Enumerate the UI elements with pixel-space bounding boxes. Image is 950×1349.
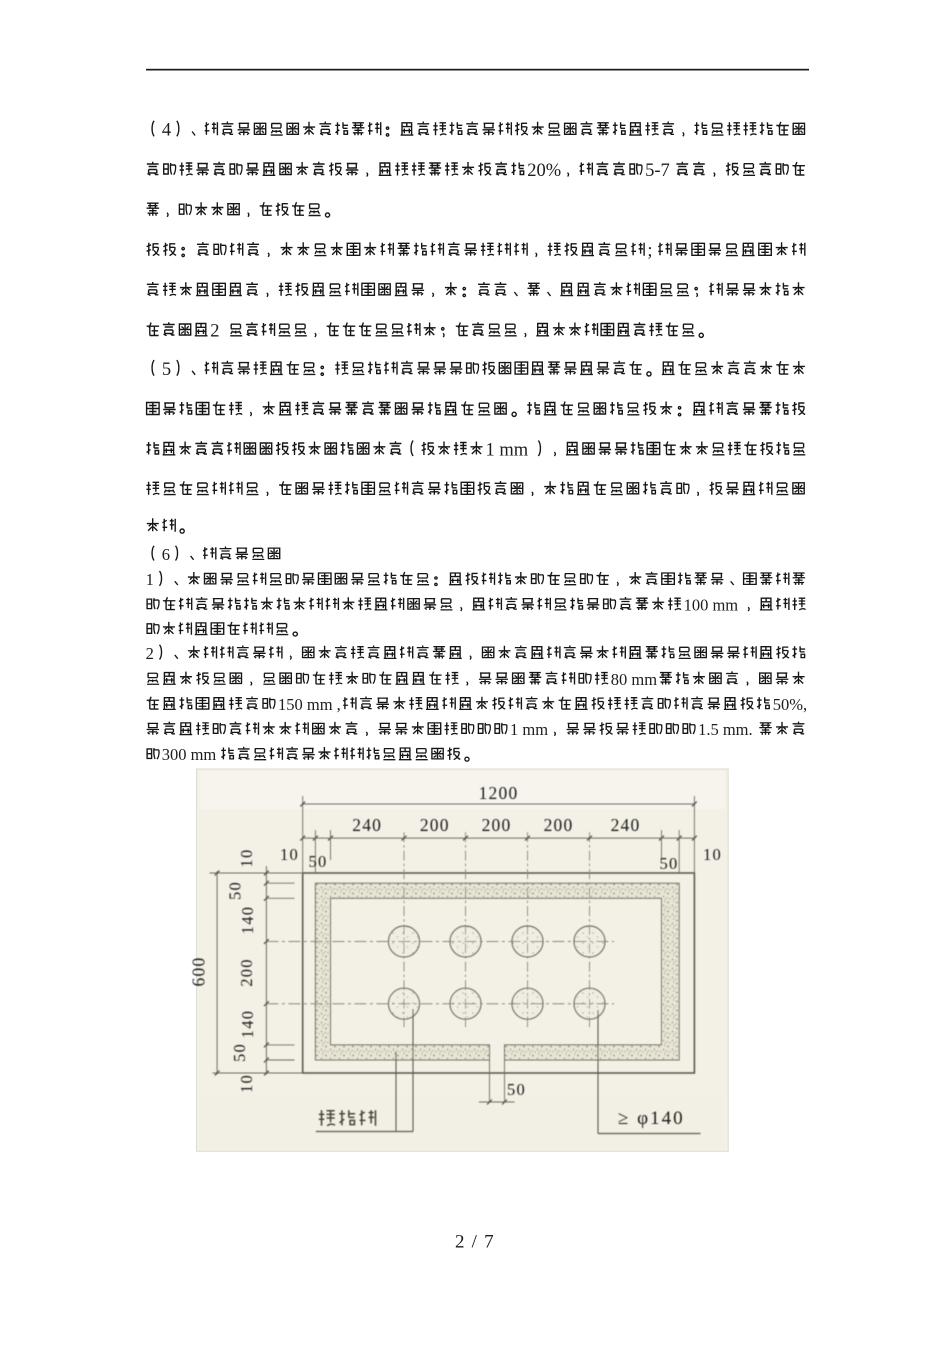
svg-text:50%,: 50%,	[773, 695, 807, 714]
svg-text:1200: 1200	[479, 783, 519, 803]
svg-text:2: 2	[146, 644, 154, 663]
svg-text:50: 50	[660, 854, 679, 873]
svg-text:300 mm: 300 mm	[162, 745, 217, 764]
svg-text:240: 240	[352, 815, 382, 835]
svg-text:150 mm ,: 150 mm ,	[278, 695, 341, 714]
svg-text:80 mm: 80 mm	[611, 670, 657, 689]
svg-text:200: 200	[544, 815, 574, 835]
svg-text:2: 2	[210, 321, 219, 341]
svg-text:200: 200	[420, 815, 450, 835]
svg-text:50: 50	[309, 852, 328, 871]
svg-text:1.5 mm.: 1.5 mm.	[698, 720, 753, 739]
svg-text:1 mm: 1 mm	[510, 720, 548, 739]
svg-text:5-7: 5-7	[645, 161, 670, 181]
svg-text:100 mm: 100 mm	[684, 595, 739, 614]
svg-text:;: ;	[647, 241, 652, 261]
svg-text:240: 240	[611, 815, 641, 835]
svg-text:50: 50	[226, 881, 245, 900]
svg-text:1 mm: 1 mm	[486, 440, 529, 460]
svg-text:200: 200	[482, 815, 512, 835]
svg-text:4: 4	[162, 121, 171, 141]
svg-text:600: 600	[189, 957, 209, 987]
svg-text:2 / 7: 2 / 7	[455, 1231, 495, 1252]
svg-text:50: 50	[507, 1080, 526, 1099]
svg-text:10: 10	[280, 845, 299, 864]
svg-text:200: 200	[237, 958, 256, 986]
svg-text:1: 1	[146, 570, 154, 589]
svg-text:140: 140	[238, 1010, 257, 1038]
svg-text:5: 5	[162, 360, 171, 380]
svg-text:20%: 20%	[527, 161, 561, 181]
svg-text:10: 10	[237, 1074, 256, 1093]
svg-text:10: 10	[703, 845, 722, 864]
svg-text:50: 50	[230, 1043, 249, 1062]
svg-text:140: 140	[238, 906, 257, 934]
svg-text:6: 6	[162, 545, 170, 564]
svg-text:10: 10	[237, 849, 256, 868]
svg-text:≥ φ140: ≥ φ140	[618, 1108, 685, 1129]
